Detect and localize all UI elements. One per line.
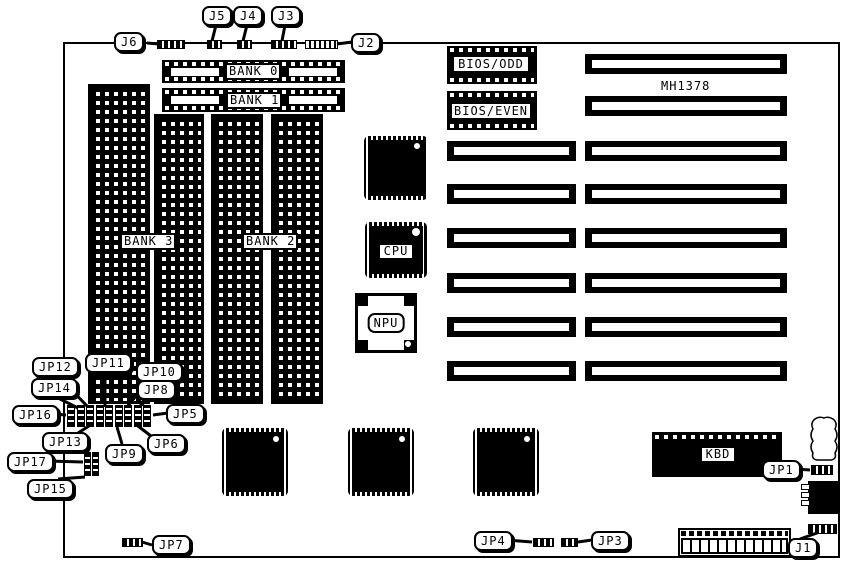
simm-slot — [289, 96, 337, 104]
jumper-jp3-pins — [561, 538, 578, 547]
label-jp16: JP16 — [12, 405, 59, 425]
j3-leader — [282, 25, 285, 41]
label-jp1: JP1 — [762, 460, 801, 480]
label-j5: J5 — [202, 6, 232, 26]
label-jp7: JP7 — [152, 535, 191, 555]
j5-leader — [212, 25, 216, 41]
bank2-label: BANK 2 — [242, 233, 298, 250]
kbd-label: KBD — [700, 446, 736, 463]
connector-tab — [801, 500, 810, 506]
board-model: MH1378 — [661, 79, 710, 93]
simm-slot — [171, 68, 219, 76]
label-j2: J2 — [351, 33, 381, 53]
chipset-chip — [364, 136, 428, 200]
io-chip — [348, 428, 414, 496]
expansion-slot — [585, 96, 787, 116]
label-jp5: JP5 — [166, 404, 205, 424]
connector-j4 — [237, 40, 252, 49]
keyboard-connector — [808, 481, 840, 514]
label-jp4: JP4 — [474, 531, 513, 551]
jumper-pins — [96, 405, 104, 427]
io-chip — [473, 428, 539, 496]
pin1-dot — [399, 436, 405, 442]
expansion-slot — [585, 317, 787, 337]
expansion-slot — [447, 228, 576, 248]
label-jp3: JP3 — [591, 531, 630, 551]
jumper-jp7-pins — [122, 538, 143, 547]
jumper-jp1-pins — [811, 465, 833, 475]
pin1-dot — [412, 228, 420, 236]
expansion-slot — [447, 317, 576, 337]
jumper-pins — [134, 405, 142, 427]
dram-column — [154, 114, 204, 404]
jumper-pins — [92, 452, 99, 476]
expansion-slot — [447, 184, 576, 204]
simm-slot — [171, 96, 219, 104]
jumper-pins — [67, 405, 75, 427]
label-j3: J3 — [271, 6, 301, 26]
simm-slot — [289, 68, 337, 76]
pin1-dot — [524, 436, 530, 442]
expansion-slot — [585, 184, 787, 204]
connector-j5 — [207, 40, 222, 49]
bank3-label: BANK 3 — [120, 233, 176, 250]
pin1-dot — [273, 436, 279, 442]
bios-odd-label: BIOS/ODD — [452, 55, 530, 73]
jumper-pins — [124, 405, 132, 427]
expansion-slot — [585, 361, 787, 381]
jumper-pins — [86, 405, 94, 427]
expansion-slot — [447, 361, 576, 381]
cpu-label: CPU — [378, 243, 414, 260]
din-connector-footprint — [806, 415, 842, 463]
expansion-slot — [585, 54, 787, 74]
connector-j6 — [157, 40, 185, 49]
jumper-pins — [105, 405, 113, 427]
pin-row — [450, 48, 534, 52]
jumper-jp4-pins — [533, 538, 554, 547]
expansion-slot — [447, 141, 576, 161]
expansion-slot — [585, 228, 787, 248]
label-jp10: JP10 — [136, 362, 183, 382]
jumper-pins — [77, 405, 85, 427]
jumper-pins — [143, 405, 151, 427]
pin1-dot — [414, 143, 420, 149]
dram-column — [271, 114, 323, 404]
label-j6: J6 — [114, 32, 144, 52]
npu-socket: NPU — [355, 293, 417, 353]
label-jp15: JP15 — [27, 479, 74, 499]
expansion-slot — [585, 141, 787, 161]
label-j1: J1 — [788, 538, 818, 558]
power-pin-row — [681, 531, 788, 536]
label-jp12: JP12 — [32, 357, 79, 377]
label-jp9: JP9 — [105, 444, 144, 464]
pin-row — [655, 435, 779, 439]
pin-row — [450, 93, 534, 97]
jumper-pins — [115, 405, 123, 427]
jumper-pins — [84, 452, 91, 476]
bank1-label: BANK 1 — [226, 92, 282, 109]
dram-column — [211, 114, 263, 404]
power-socket-row — [681, 538, 788, 554]
connector-j2 — [305, 40, 338, 49]
io-chip — [222, 428, 288, 496]
label-j4: J4 — [233, 6, 263, 26]
label-jp8: JP8 — [137, 380, 176, 400]
npu-label: NPU — [368, 313, 405, 333]
connector-j3 — [271, 40, 297, 49]
pin-row — [450, 124, 534, 128]
expansion-slot — [585, 273, 787, 293]
bios-even-label: BIOS/EVEN — [450, 102, 532, 120]
j4-leader — [243, 25, 247, 41]
connector-j1-pins — [808, 524, 837, 534]
connector-tab — [801, 492, 810, 498]
label-jp11: JP11 — [85, 353, 132, 373]
connector-tab — [801, 484, 810, 490]
label-jp13: JP13 — [42, 432, 89, 452]
label-jp14: JP14 — [31, 378, 78, 398]
bank0-label: BANK 0 — [225, 63, 281, 80]
pin1-dot — [404, 340, 412, 348]
pin-row — [450, 78, 534, 82]
motherboard-diagram: MH1378 BANK 0 BANK 1 BANK 3 BANK 2 BIOS/… — [0, 0, 847, 566]
label-jp17: JP17 — [7, 452, 54, 472]
expansion-slot — [447, 273, 576, 293]
label-jp6: JP6 — [147, 434, 186, 454]
power-connector — [678, 528, 791, 557]
